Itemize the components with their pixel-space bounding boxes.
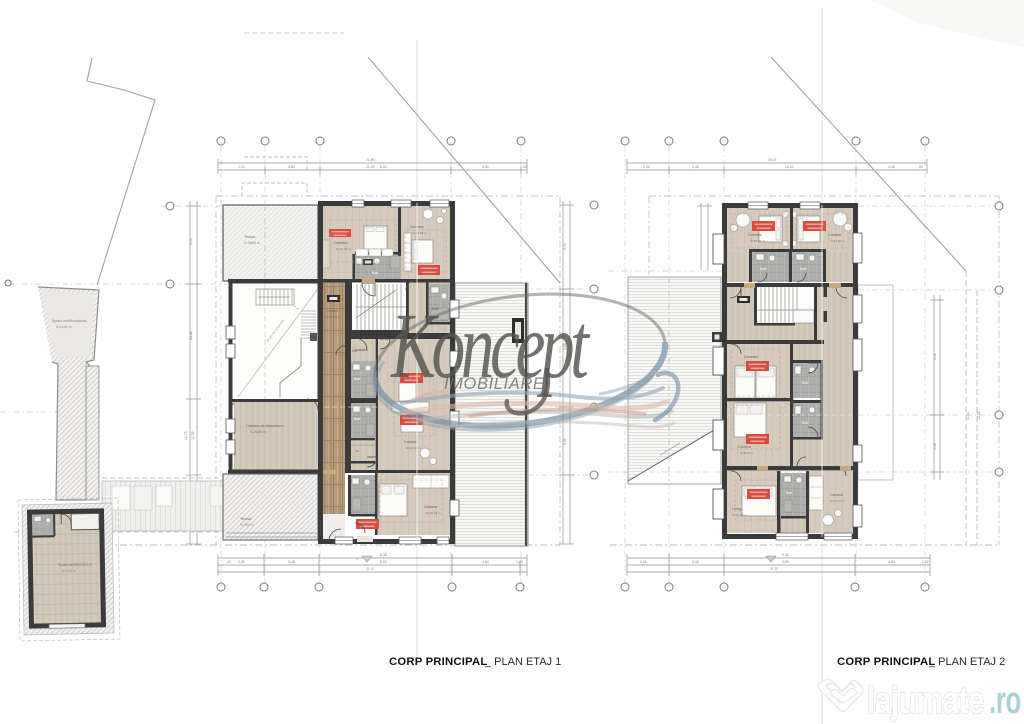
svg-text:5,03: 5,03	[933, 353, 937, 360]
svg-text:Spatiu multifunctional: Spatiu multifunctional	[52, 319, 86, 323]
svg-text:CORP PRINCIPAL: CORP PRINCIPAL	[837, 656, 935, 668]
svg-text:11,51: 11,51	[966, 412, 970, 420]
svg-text:Baie: Baie	[802, 381, 809, 385]
svg-text:S=20,26 m: S=20,26 m	[426, 511, 441, 515]
svg-text:4,84: 4,84	[482, 560, 489, 564]
svg-text:Baie: Baie	[354, 417, 361, 421]
svg-text:21,07: 21,07	[366, 567, 375, 571]
svg-text:Terasa: Terasa	[240, 517, 252, 521]
svg-text:2,05: 2,05	[238, 560, 245, 564]
svg-text:CORP PRINCIPAL: CORP PRINCIPAL	[389, 656, 487, 668]
svg-text:Dormitor: Dormitor	[744, 355, 759, 359]
svg-text:Baie: Baie	[354, 377, 361, 381]
svg-text:S=13,07 m: S=13,07 m	[830, 499, 845, 503]
svg-text:21,02: 21,02	[366, 165, 375, 169]
svg-text:10,22: 10,22	[785, 165, 794, 169]
svg-text:CH: CH	[355, 449, 359, 453]
svg-text:Camera de birou/lucru: Camera de birou/lucru	[246, 424, 284, 428]
svg-text:6,42: 6,42	[380, 165, 387, 169]
svg-text:21,07: 21,07	[770, 567, 779, 571]
svg-text:_ PLAN ETAJ 1: _ PLAN ETAJ 1	[484, 656, 561, 668]
svg-text:21,50: 21,50	[366, 158, 375, 162]
svg-text:Camera: Camera	[830, 493, 843, 497]
svg-text:Coridor: Coridor	[326, 309, 339, 313]
svg-text:Camera: Camera	[738, 445, 751, 449]
svg-text:16,07: 16,07	[768, 158, 777, 162]
svg-text:3,45: 3,45	[288, 560, 295, 564]
svg-text:Baie: Baie	[802, 421, 809, 425]
svg-text:,50: ,50	[522, 165, 527, 169]
svg-text:_ PLAN ETAJ 2: _ PLAN ETAJ 2	[928, 656, 1005, 668]
svg-text:Living: Living	[732, 507, 741, 511]
svg-text:1,03: 1,03	[238, 165, 245, 169]
svg-text:8,90: 8,90	[380, 560, 387, 564]
svg-text:S=17,08 m: S=17,08 m	[732, 513, 747, 517]
svg-text:2,06: 2,06	[640, 560, 647, 564]
svg-text:Spatiu multifunctional: Spatiu multifunctional	[58, 563, 92, 568]
svg-text:12,73: 12,73	[184, 431, 188, 440]
svg-text:13,52: 13,52	[977, 411, 981, 420]
svg-text:S=20,04 m: S=20,04 m	[406, 446, 421, 450]
svg-text:S=18,96 m: S=18,96 m	[326, 315, 341, 319]
svg-text:3,80: 3,80	[288, 165, 295, 169]
svg-text:2,06: 2,06	[643, 165, 650, 169]
svg-text:3,48: 3,48	[692, 165, 699, 169]
svg-text:Baie: Baie	[800, 267, 807, 271]
svg-text:S=16,60 m: S=16,60 m	[244, 241, 260, 245]
svg-text:3,48: 3,48	[692, 560, 699, 564]
svg-text:4,84: 4,84	[888, 560, 895, 564]
svg-text:,50: ,50	[918, 165, 923, 169]
svg-text:5,03: 5,03	[189, 238, 193, 245]
svg-text:Camera: Camera	[424, 505, 437, 509]
svg-text:S=16,86 m: S=16,86 m	[750, 239, 765, 243]
svg-text:1,02: 1,02	[922, 560, 929, 564]
svg-text:Dormitor: Dormitor	[748, 233, 763, 237]
svg-text:5,03: 5,03	[563, 243, 567, 250]
svg-text:S=12,80 m: S=12,80 m	[56, 325, 72, 329]
svg-text:IMOBILIARE: IMOBILIARE	[444, 375, 545, 393]
svg-text:8,38: 8,38	[380, 553, 387, 557]
svg-text:Dormitor: Dormitor	[334, 241, 349, 245]
svg-text:lajumate: lajumate	[867, 680, 984, 722]
svg-text:Baie: Baie	[760, 267, 767, 271]
svg-text:5,95: 5,95	[563, 438, 567, 445]
svg-text:4,38: 4,38	[888, 165, 895, 169]
svg-text:4,50: 4,50	[482, 165, 489, 169]
svg-text:S=17,90 m: S=17,90 m	[830, 239, 845, 243]
svg-text:S=13,08 m: S=13,08 m	[412, 231, 427, 235]
svg-text:2,08: 2,08	[933, 443, 937, 450]
svg-text:12,35: 12,35	[191, 431, 195, 440]
svg-text:Camera: Camera	[404, 440, 417, 444]
svg-text:9,90: 9,90	[782, 560, 789, 564]
svg-text:Camera: Camera	[828, 233, 841, 237]
svg-text:S=21,08 m: S=21,08 m	[336, 247, 351, 251]
svg-text:S=23,8 m: S=23,8 m	[240, 523, 254, 527]
svg-text:9,38: 9,38	[782, 553, 789, 557]
svg-text:S=20,65 m: S=20,65 m	[250, 430, 266, 434]
svg-text:24,38: 24,38	[189, 331, 193, 340]
svg-text:S=24,9 m: S=24,9 m	[62, 569, 76, 573]
svg-text:1,44: 1,44	[516, 560, 523, 564]
svg-text:S=20,8 m: S=20,8 m	[740, 451, 753, 455]
svg-text:.ro: .ro	[989, 679, 1021, 721]
svg-text:Terasa: Terasa	[244, 235, 256, 239]
svg-text:Baie: Baie	[786, 491, 793, 495]
svg-text:Baie: Baie	[372, 271, 379, 275]
svg-text:,40: ,40	[226, 560, 231, 564]
